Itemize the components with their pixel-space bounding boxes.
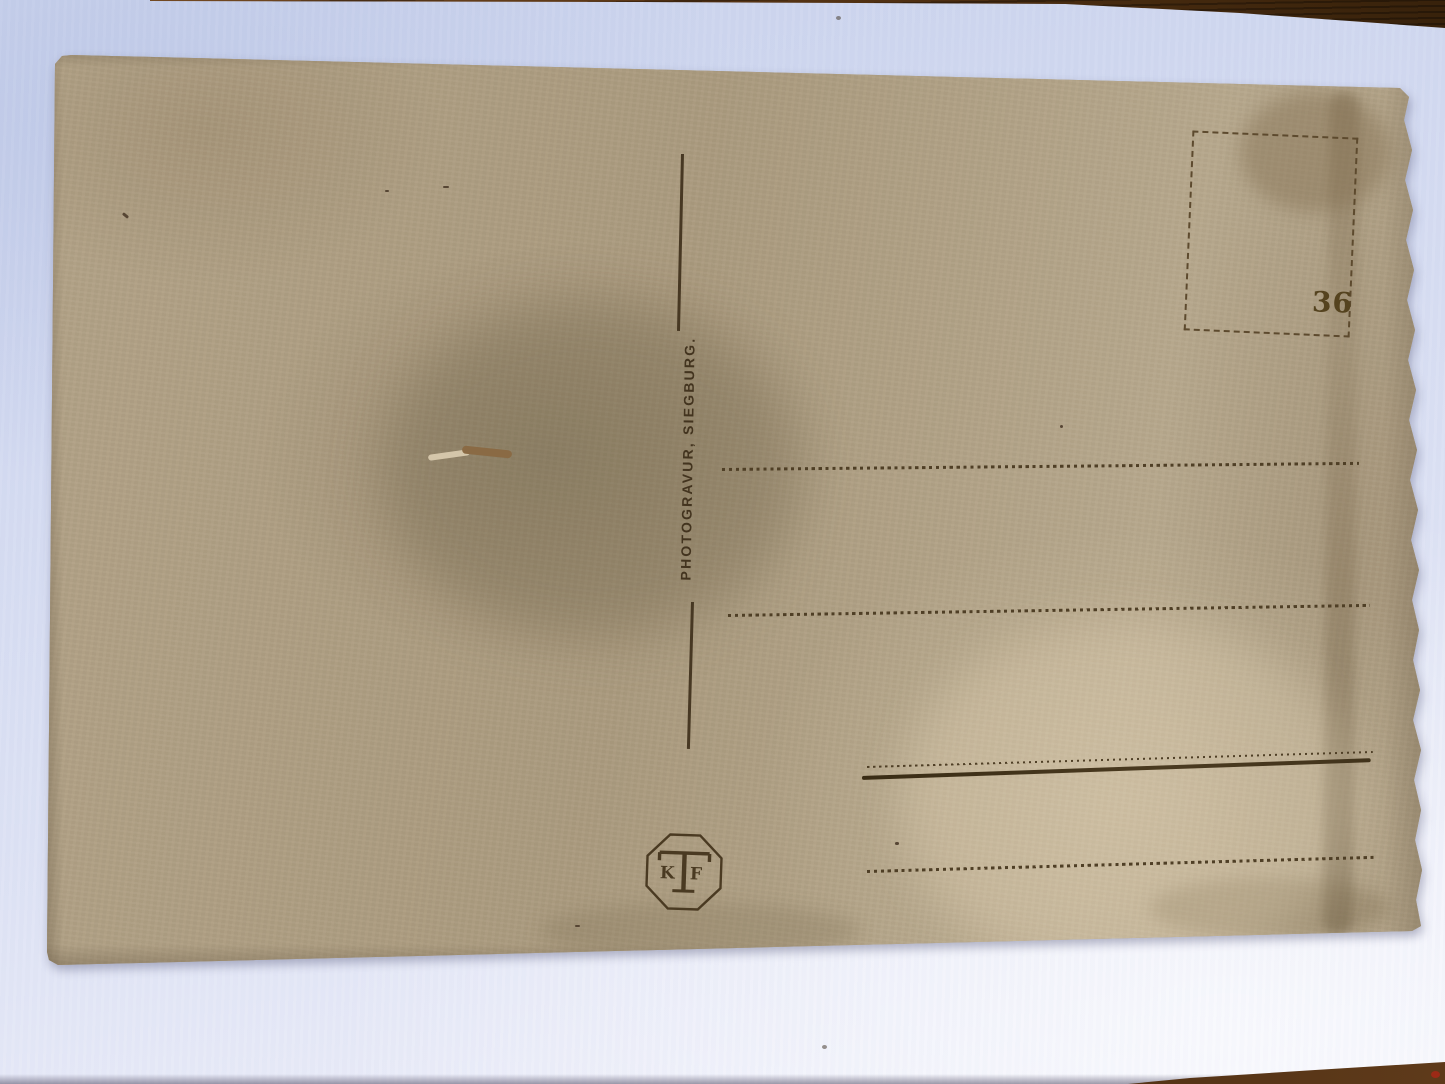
postcard-paper: 36 PHOTOGRAVUR, SIEGBURG. K F (0, 0, 1445, 1084)
postcard: 36 PHOTOGRAVUR, SIEGBURG. K F (0, 0, 1445, 1084)
paper-speck (443, 186, 449, 188)
paper-edge-shading-right (1384, 88, 1424, 933)
ktf-logo-letter-k: K (660, 863, 677, 884)
ktf-logo-letter-t-foot (672, 891, 694, 892)
ktf-logo: K F (638, 826, 729, 917)
paper-speck (1060, 425, 1063, 428)
paper-edge-shading-left (47, 55, 63, 965)
paper-speck (385, 190, 389, 192)
ktf-logo-letter-t-stem (683, 853, 684, 891)
paper-speck (575, 925, 580, 927)
ktf-logo-letter-f: F (690, 864, 703, 884)
paper-edge-shading-top (55, 55, 1408, 67)
paper-speck (895, 842, 899, 845)
paper-light-patch (900, 620, 1360, 980)
stamp-box-number: 36 (1311, 287, 1356, 319)
